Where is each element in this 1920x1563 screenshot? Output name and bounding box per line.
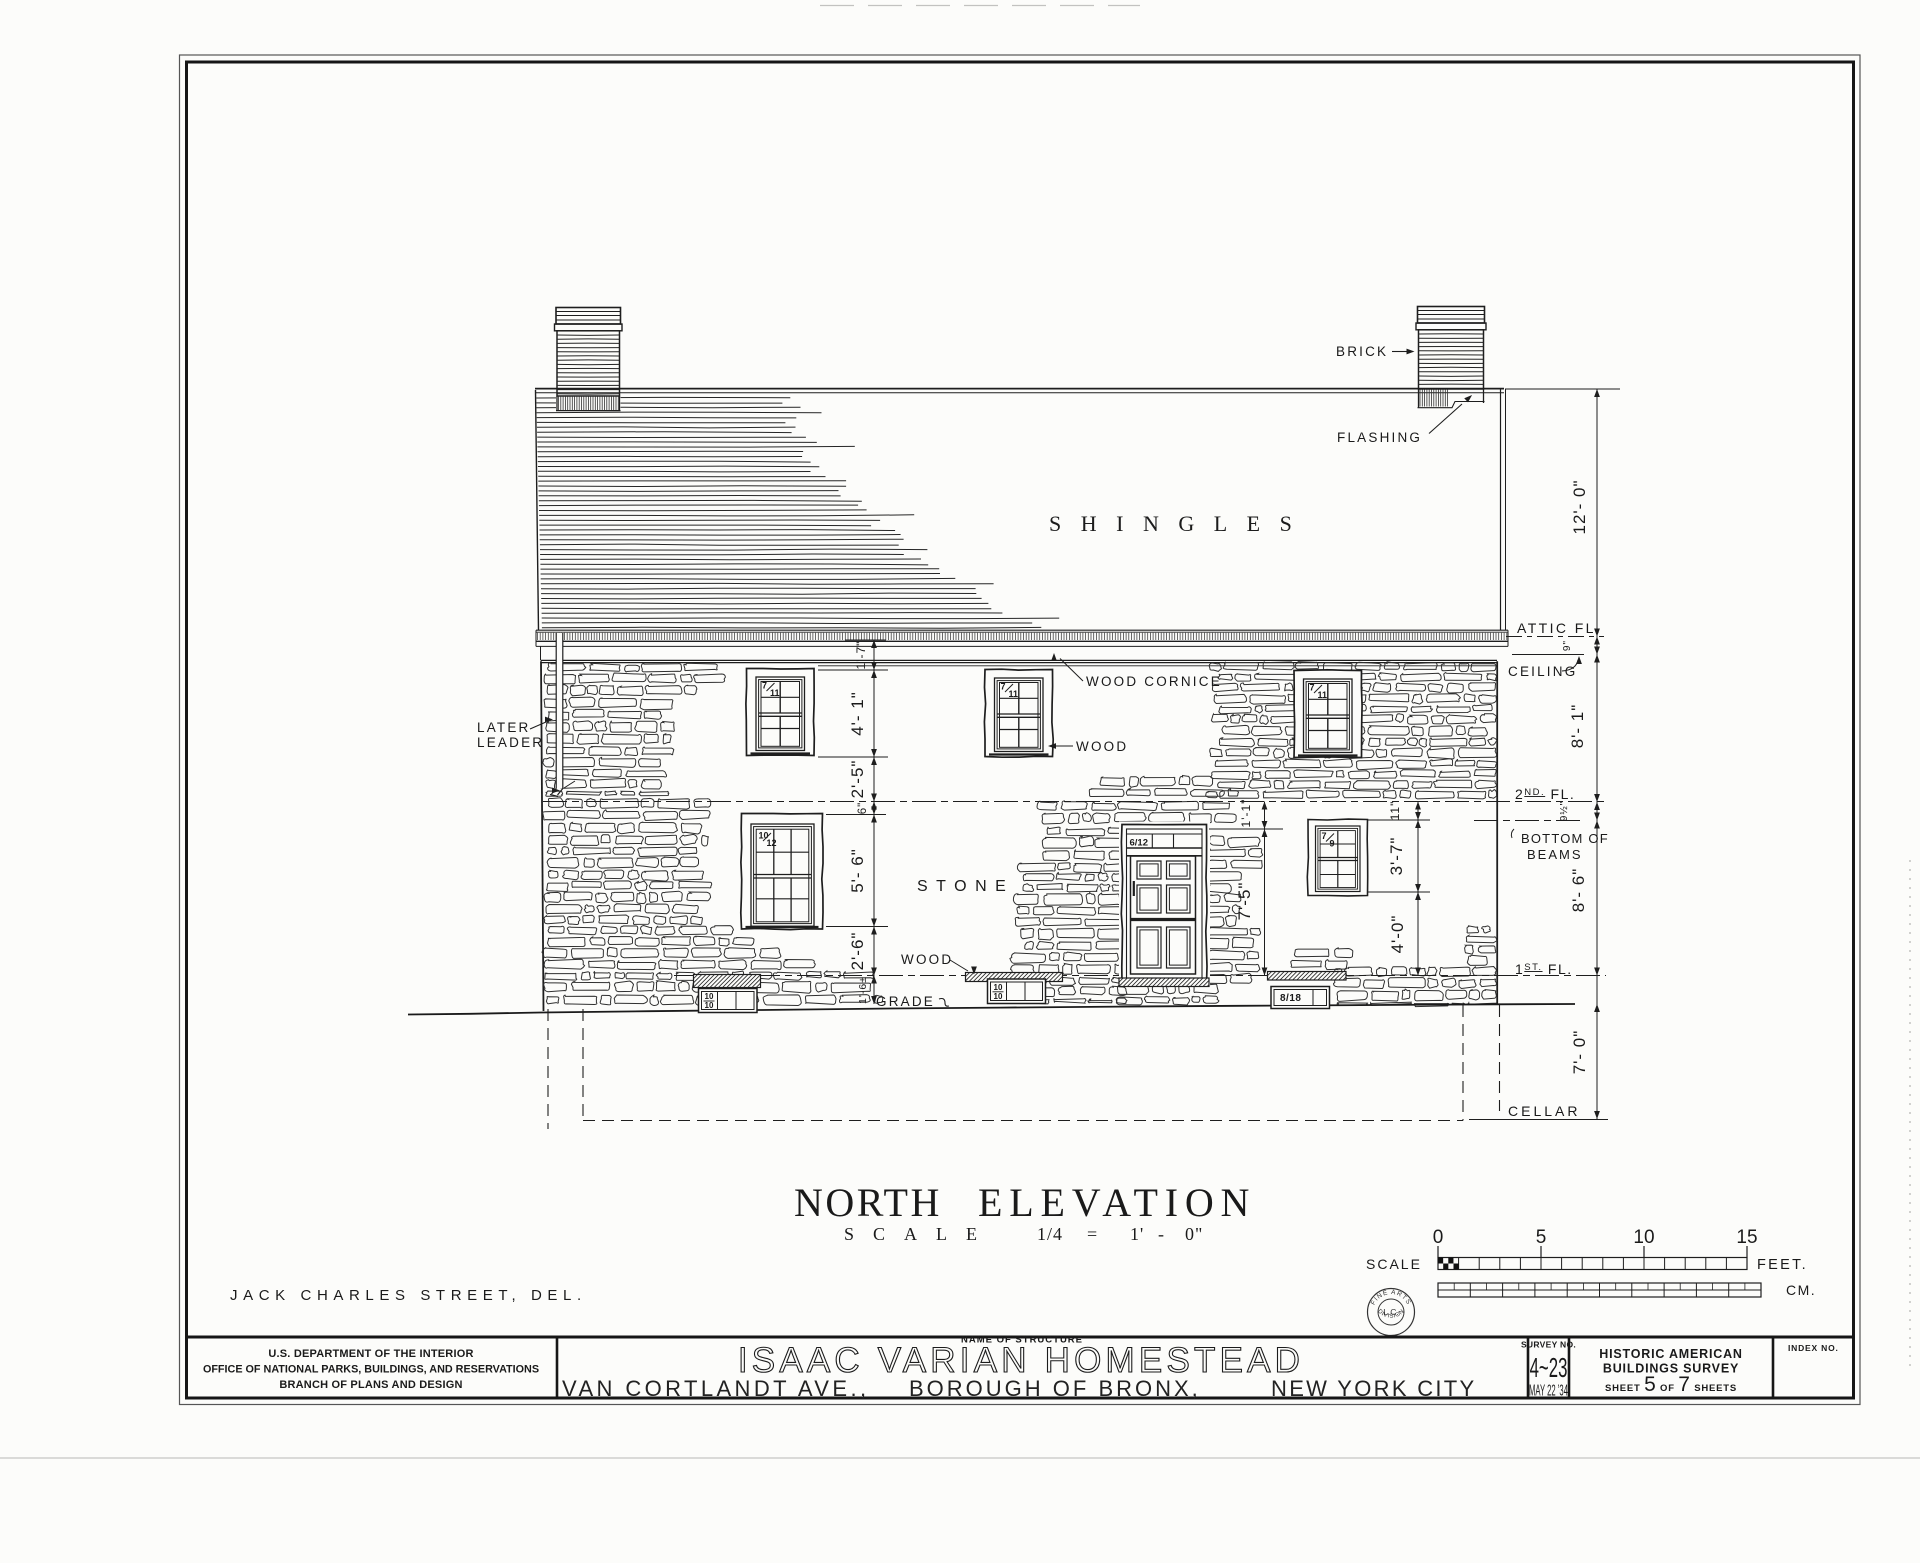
svg-text:15: 15 bbox=[1736, 1227, 1757, 1248]
svg-text:2ND. FL.: 2ND. FL. bbox=[1515, 786, 1575, 802]
svg-text:7'- 0": 7'- 0" bbox=[1570, 1030, 1589, 1075]
svg-text:5'- 6": 5'- 6" bbox=[848, 848, 867, 893]
svg-text:12'- 0": 12'- 0" bbox=[1570, 479, 1589, 534]
svg-text:1'-6±: 1'-6± bbox=[857, 976, 869, 1004]
svg-text:CELLAR: CELLAR bbox=[1508, 1103, 1580, 1119]
svg-text:10: 10 bbox=[994, 983, 1003, 992]
svg-text:FEET.: FEET. bbox=[1757, 1257, 1808, 1273]
svg-text:BOTTOM OF: BOTTOM OF bbox=[1521, 831, 1609, 846]
svg-text:-: - bbox=[1158, 1224, 1165, 1244]
svg-text:8'- 1": 8'- 1" bbox=[1568, 704, 1587, 749]
svg-text:BOROUGH OF BRONX,: BOROUGH OF BRONX, bbox=[909, 1376, 1201, 1401]
svg-text:7: 7 bbox=[1001, 682, 1006, 692]
svg-text:11: 11 bbox=[1009, 689, 1019, 699]
svg-text:OFFICE OF NATIONAL PARKS, BUIL: OFFICE OF NATIONAL PARKS, BUILDINGS, AND… bbox=[203, 1364, 539, 1376]
svg-text:JACK CHARLES STREET, DEL.: JACK CHARLES STREET, DEL. bbox=[230, 1287, 587, 1304]
svg-text:9: 9 bbox=[1330, 839, 1335, 849]
svg-text:12: 12 bbox=[767, 838, 777, 848]
svg-text:SHINGLES: SHINGLES bbox=[1049, 511, 1311, 536]
svg-text:7: 7 bbox=[1322, 831, 1327, 841]
svg-text:1/4: 1/4 bbox=[1037, 1224, 1063, 1244]
svg-text:1': 1' bbox=[1130, 1224, 1144, 1244]
svg-text:INDEX NO.: INDEX NO. bbox=[1788, 1343, 1839, 1353]
svg-text:0": 0" bbox=[1185, 1224, 1203, 1244]
svg-text:3'-7": 3'-7" bbox=[1387, 837, 1406, 876]
svg-text:9": 9" bbox=[1562, 640, 1573, 651]
svg-text:4~23: 4~23 bbox=[1530, 1352, 1568, 1384]
svg-text:0: 0 bbox=[1433, 1227, 1444, 1248]
svg-text:9½": 9½" bbox=[1559, 801, 1570, 821]
svg-text:SURVEY NO.: SURVEY NO. bbox=[1521, 1340, 1576, 1350]
svg-text:LEADER: LEADER bbox=[477, 735, 544, 750]
svg-text:1ST. FL.: 1ST. FL. bbox=[1515, 961, 1573, 977]
svg-text:BRICK: BRICK bbox=[1336, 344, 1388, 359]
svg-text:BRANCH OF PLANS AND DESIGN: BRANCH OF PLANS AND DESIGN bbox=[279, 1379, 462, 1391]
svg-text:11: 11 bbox=[1318, 690, 1328, 700]
svg-text:LATER: LATER bbox=[477, 720, 531, 735]
svg-text:WOOD: WOOD bbox=[901, 952, 953, 967]
svg-text:=: = bbox=[1087, 1224, 1098, 1244]
svg-text:SCALE: SCALE bbox=[1366, 1256, 1422, 1272]
svg-text:ELEVATION: ELEVATION bbox=[978, 1180, 1256, 1225]
svg-text:10: 10 bbox=[705, 1001, 714, 1010]
svg-text:CM.: CM. bbox=[1786, 1282, 1816, 1298]
svg-text:2'-5": 2'-5" bbox=[848, 760, 867, 799]
svg-text:10: 10 bbox=[1633, 1227, 1654, 1248]
svg-text:U.S. DEPARTMENT OF THE INTERIO: U.S. DEPARTMENT OF THE INTERIOR bbox=[268, 1348, 473, 1360]
svg-text:MAY 22 ’34: MAY 22 ’34 bbox=[1529, 1381, 1568, 1399]
svg-text:NORTH: NORTH bbox=[794, 1180, 942, 1225]
svg-text:SCALE: SCALE bbox=[844, 1224, 996, 1244]
svg-text:5: 5 bbox=[1536, 1227, 1547, 1248]
svg-text:WOOD: WOOD bbox=[1076, 739, 1128, 754]
svg-text:L.C.: L.C. bbox=[1383, 1307, 1399, 1317]
svg-text:7: 7 bbox=[1310, 683, 1315, 693]
svg-text:4'-0": 4'-0" bbox=[1388, 915, 1407, 954]
svg-text:11: 11 bbox=[770, 688, 780, 698]
svg-text:NEW YORK CITY: NEW YORK CITY bbox=[1271, 1376, 1477, 1401]
svg-text:HISTORIC AMERICAN: HISTORIC AMERICAN bbox=[1599, 1347, 1742, 1361]
svg-text:4'- 1": 4'- 1" bbox=[848, 691, 867, 736]
svg-text:FLASHING: FLASHING bbox=[1337, 430, 1422, 445]
svg-text:11": 11" bbox=[1388, 801, 1402, 821]
svg-text:BUILDINGS SURVEY: BUILDINGS SURVEY bbox=[1603, 1362, 1739, 1376]
svg-text:2'-6": 2'-6" bbox=[848, 932, 867, 971]
svg-text:7'-5": 7'-5" bbox=[1235, 882, 1254, 921]
svg-text:8/18: 8/18 bbox=[1280, 993, 1301, 1004]
svg-text:10: 10 bbox=[994, 992, 1003, 1001]
svg-text:ISAAC VARIAN HOMESTEAD: ISAAC VARIAN HOMESTEAD bbox=[738, 1341, 1304, 1380]
svg-text:CEILING: CEILING bbox=[1508, 664, 1577, 679]
svg-text:7: 7 bbox=[762, 681, 767, 691]
svg-text:8'- 6": 8'- 6" bbox=[1569, 868, 1588, 913]
svg-text:6/12: 6/12 bbox=[1130, 838, 1149, 849]
svg-text:BEAMS: BEAMS bbox=[1527, 847, 1583, 862]
svg-text:6": 6" bbox=[857, 802, 869, 814]
svg-text:VAN CORTLANDT AVE.,: VAN CORTLANDT AVE., bbox=[562, 1376, 869, 1401]
svg-text:1'-1": 1'-1" bbox=[1239, 799, 1253, 828]
svg-text:10: 10 bbox=[705, 992, 714, 1001]
svg-text:1'-7": 1'-7" bbox=[854, 641, 868, 670]
svg-text:GRADE: GRADE bbox=[876, 994, 935, 1009]
svg-text:ATTIC FL.: ATTIC FL. bbox=[1517, 620, 1602, 636]
svg-text:WOOD CORNICE: WOOD CORNICE bbox=[1086, 674, 1222, 689]
svg-text:STONE: STONE bbox=[917, 878, 1014, 895]
